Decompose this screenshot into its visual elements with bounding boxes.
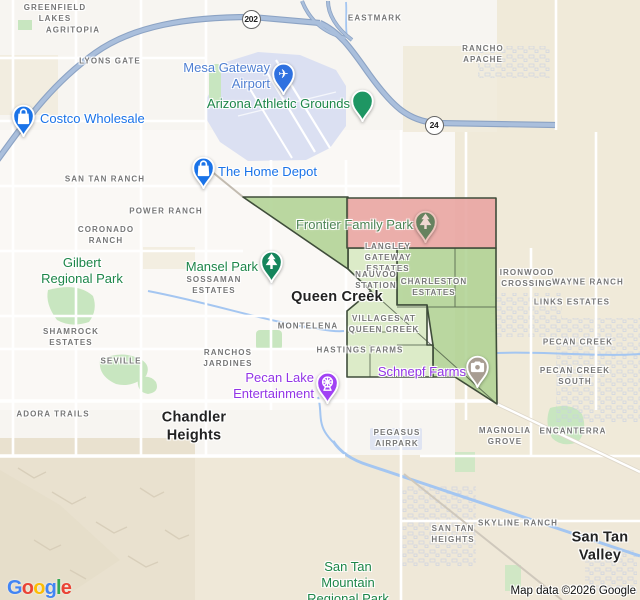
mansel-park-marker[interactable] (258, 249, 285, 288)
label-shamrock-estates: SHAMROCK ESTATES (43, 327, 99, 349)
tree-icon (412, 209, 439, 243)
shopping-bag-icon (190, 155, 217, 189)
ferris-wheel-icon (314, 370, 341, 404)
svg-text:✈: ✈ (278, 67, 288, 81)
label-sossaman-estates: SOSSAMAN ESTATES (186, 275, 241, 297)
map-canvas[interactable]: GREENFIELD LAKESAGRITOPIALYONS GATEEASTM… (0, 0, 640, 600)
label-adora-trails: ADORA TRAILS (16, 410, 89, 421)
costco-marker[interactable] (10, 103, 37, 142)
google-logo[interactable]: Google (7, 577, 71, 600)
label-chandler-heights-city[interactable]: Chandler Heights (162, 409, 226, 444)
tree-icon (258, 249, 285, 283)
label-san-tan-ranch: SAN TAN RANCH (65, 175, 145, 186)
google-logo-letter: o (22, 577, 33, 599)
arizona-athletic-grounds-marker[interactable] (349, 88, 376, 127)
label-eastmark: EASTMARK (348, 14, 402, 25)
label-ironwood-crossing: IRONWOOD CROSSING (500, 268, 555, 290)
label-encanterra: ENCANTERRA (540, 427, 607, 438)
label-frontier-family-park[interactable]: Frontier Family Park (296, 217, 413, 233)
label-skyline-ranch: SKYLINE RANCH (478, 519, 558, 530)
label-san-tan-heights: SAN TAN HEIGHTS (431, 524, 474, 546)
label-villages-at-queen-creek: VILLAGES AT QUEEN CREEK (349, 314, 420, 336)
label-the-home-depot[interactable]: The Home Depot (218, 164, 317, 180)
schnepf-farms-marker[interactable] (464, 354, 491, 393)
google-logo-letter: G (7, 577, 22, 599)
label-san-tan-valley-city[interactable]: San Tan Valley (572, 529, 629, 564)
label-montelena: MONTELENA (278, 322, 339, 333)
google-logo-letter: o (33, 577, 44, 599)
google-logo-letter: g (45, 577, 56, 599)
label-agritopia: AGRITOPIA (46, 26, 100, 37)
label-rancho-apache: RANCHO APACHE (462, 44, 504, 66)
map-attribution: Map data ©2026 Google (511, 585, 636, 597)
label-pecan-creek-south: PECAN CREEK SOUTH (540, 366, 610, 388)
label-pecan-lake-entertainment[interactable]: Pecan Lake Entertainment (233, 370, 314, 402)
label-san-tan-mountain-regional-park[interactable]: San Tan Mountain Regional Park (307, 559, 389, 600)
label-pegasus-airpark: PEGASUS AIRPARK (374, 428, 421, 450)
label-hastings-farms: HASTINGS FARMS (317, 346, 404, 357)
dot-icon (349, 88, 376, 122)
pecan-lake-entertainment-marker[interactable] (314, 370, 341, 409)
camera-icon (464, 354, 491, 388)
label-lyons-gate: LYONS GATE (79, 57, 141, 68)
label-wayne-ranch: WAYNE RANCH (552, 278, 624, 289)
shopping-bag-icon (10, 103, 37, 137)
route-shield-24: 24 (425, 116, 444, 135)
label-queen-creek-city[interactable]: Queen Creek (291, 289, 383, 307)
label-links-estates: LINKS ESTATES (534, 298, 610, 309)
label-power-ranch: POWER RANCH (129, 207, 202, 218)
label-pecan-creek: PECAN CREEK (543, 338, 613, 349)
mesa-gateway-airport-marker[interactable]: ✈ (270, 61, 297, 100)
label-seville: SEVILLE (100, 357, 141, 368)
route-shield-202: 202 (242, 10, 261, 29)
label-schnepf-farms[interactable]: Schnepf Farms (378, 364, 466, 380)
label-gilbert-regional-park[interactable]: Gilbert Regional Park (41, 255, 123, 287)
google-logo-letter: e (61, 577, 71, 599)
label-mesa-gateway-airport[interactable]: Mesa Gateway Airport (183, 60, 270, 92)
label-greenfield-lakes: GREENFIELD LAKES (24, 3, 87, 25)
label-costco-wholesale[interactable]: Costco Wholesale (40, 111, 145, 127)
label-ranchos-jardines: RANCHOS JARDINES (203, 348, 252, 370)
label-coronado-ranch: CORONADO RANCH (78, 225, 134, 247)
airplane-icon: ✈ (270, 61, 297, 95)
frontier-family-park-marker[interactable] (412, 209, 439, 248)
label-mansel-park[interactable]: Mansel Park (186, 259, 258, 275)
label-charleston-estates: CHARLESTON ESTATES (401, 277, 467, 299)
label-magnolia-grove: MAGNOLIA GROVE (479, 426, 531, 448)
home-depot-marker[interactable] (190, 155, 217, 194)
